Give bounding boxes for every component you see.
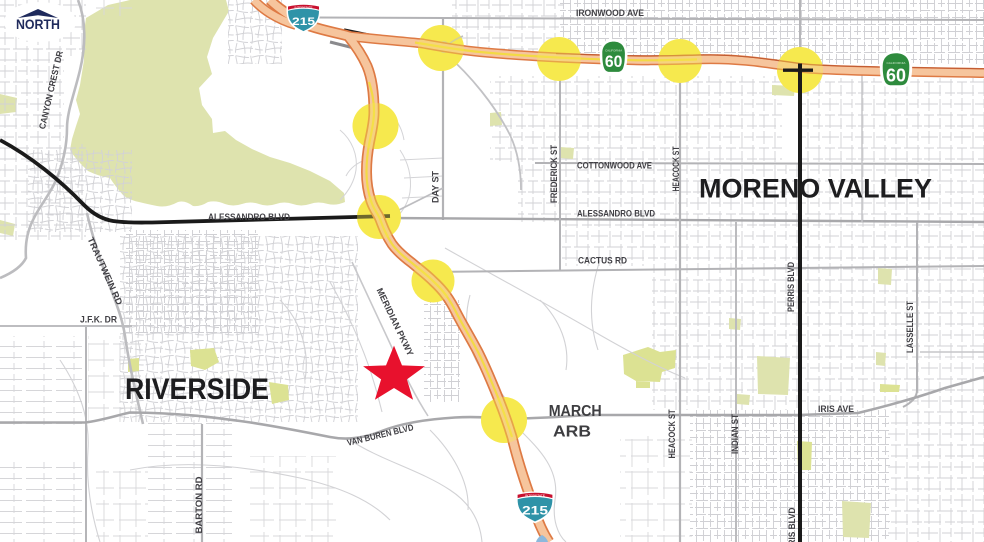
svg-text:IRONWOOD AVE: IRONWOOD AVE [576,8,644,18]
svg-text:RIVERSIDE: RIVERSIDE [125,373,269,406]
svg-text:MORENO VALLEY: MORENO VALLEY [699,174,932,204]
svg-text:DAY ST: DAY ST [431,170,441,203]
svg-text:CACTUS RD: CACTUS RD [578,256,627,266]
svg-text:LASSELLE ST: LASSELLE ST [905,301,915,353]
svg-text:215: 215 [292,16,315,28]
svg-text:INDIAN ST: INDIAN ST [730,414,740,454]
svg-text:MARCH: MARCH [549,403,602,420]
svg-text:INTERSTATE: INTERSTATE [525,494,545,498]
svg-text:PERRIS BLVD: PERRIS BLVD [787,507,797,542]
svg-text:NORTH: NORTH [16,16,60,32]
svg-text:60: 60 [605,53,623,71]
svg-text:PERRIS BLVD: PERRIS BLVD [786,262,796,312]
svg-text:HEACOCK ST: HEACOCK ST [671,146,681,191]
svg-text:HEACOCK ST: HEACOCK ST [667,409,677,458]
svg-text:ALESSANDRO BLVD: ALESSANDRO BLVD [208,212,290,222]
svg-text:IRIS AVE: IRIS AVE [818,404,854,414]
svg-text:J.F.K. DR: J.F.K. DR [80,315,117,325]
svg-text:ALESSANDRO BLVD: ALESSANDRO BLVD [577,209,655,219]
svg-text:BARTON RD: BARTON RD [194,476,204,534]
svg-text:COTTONWOOD AVE: COTTONWOOD AVE [577,161,652,171]
svg-text:ARB: ARB [553,424,591,441]
svg-text:60: 60 [886,65,906,86]
svg-text:215: 215 [522,504,548,518]
svg-text:CALIFORNIA: CALIFORNIA [605,49,622,53]
svg-text:FREDERICK ST: FREDERICK ST [549,145,559,203]
